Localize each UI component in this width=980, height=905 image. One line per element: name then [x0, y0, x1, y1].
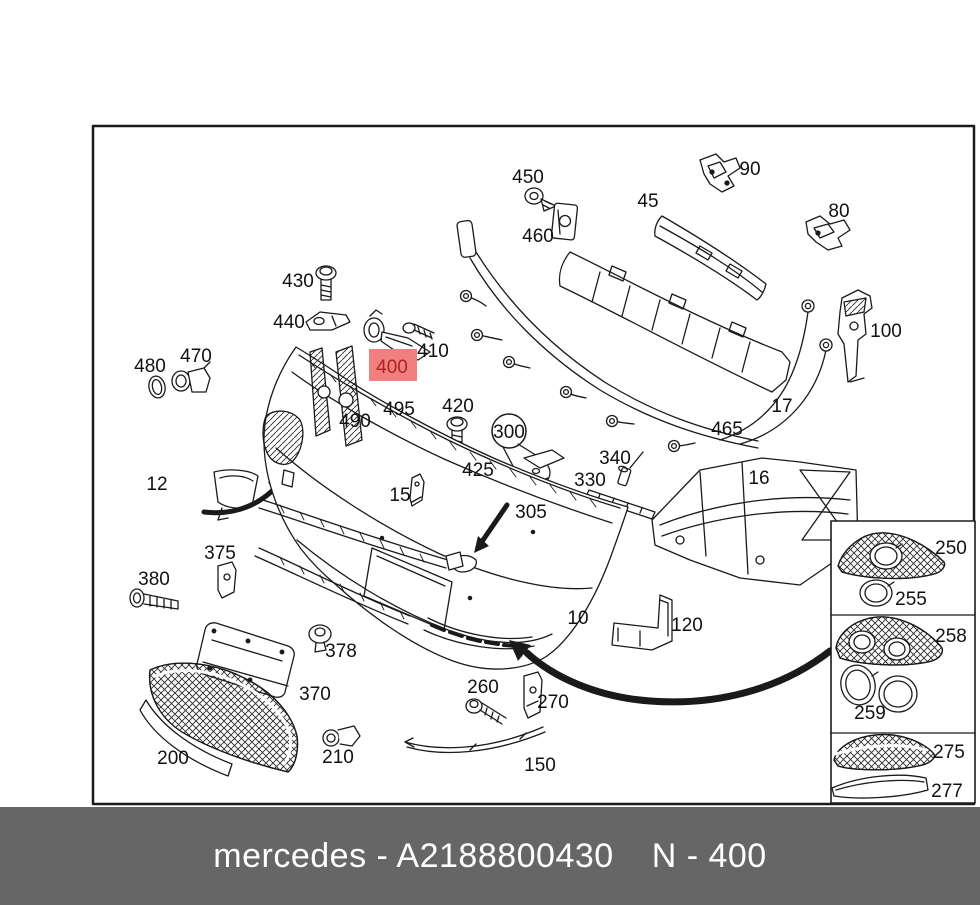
- part-label-460[interactable]: 460: [522, 226, 554, 247]
- part-label-430[interactable]: 430: [282, 271, 314, 292]
- parts-diagram-page: 450 460 90 45 80 100 430 440 410 480 470…: [0, 0, 980, 905]
- part-label-410[interactable]: 410: [417, 341, 449, 362]
- part-375-bracket: [218, 562, 236, 598]
- part-label-380[interactable]: 380: [138, 569, 170, 590]
- part-380-screw: [130, 589, 178, 609]
- footer-bar: mercedes - A2188800430 N - 400: [0, 807, 980, 905]
- part-label-490[interactable]: 490: [339, 411, 371, 432]
- part-label-275[interactable]: 275: [933, 742, 965, 763]
- part-210-sensor: [323, 726, 360, 746]
- part-label-420[interactable]: 420: [442, 396, 474, 417]
- part-label-277[interactable]: 277: [931, 781, 963, 802]
- part-label-255[interactable]: 255: [895, 589, 927, 610]
- part-17-absorber: [559, 252, 790, 392]
- part-label-270[interactable]: 270: [537, 692, 569, 713]
- part-label-10[interactable]: 10: [567, 608, 588, 629]
- diagram-canvas: 450 460 90 45 80 100 430 440 410 480 470…: [0, 0, 980, 807]
- part-label-465[interactable]: 465: [711, 419, 743, 440]
- part-label-80[interactable]: 80: [828, 201, 849, 222]
- part-460-clip: [551, 203, 578, 240]
- part-label-330[interactable]: 330: [574, 470, 606, 491]
- part-410-screw: [403, 323, 434, 339]
- part-260-screw: [466, 699, 506, 724]
- part-label-495[interactable]: 495: [383, 399, 415, 420]
- part-label-378[interactable]: 378: [325, 641, 357, 662]
- part-label-200[interactable]: 200: [157, 748, 189, 769]
- part-120-bracket: [612, 595, 672, 650]
- part-label-15[interactable]: 15: [389, 485, 410, 506]
- part-label-16[interactable]: 16: [748, 468, 769, 489]
- part-label-250[interactable]: 250: [935, 538, 967, 559]
- part-label-375[interactable]: 375: [204, 543, 236, 564]
- part-label-400[interactable]: 400: [376, 357, 408, 378]
- part-430-bolt: [316, 266, 336, 300]
- part-100-bracket: [838, 290, 872, 382]
- part-label-259[interactable]: 259: [854, 703, 886, 724]
- part-150-trim: [405, 727, 545, 752]
- part-label-45[interactable]: 45: [637, 191, 658, 212]
- part-label-90[interactable]: 90: [739, 159, 760, 180]
- part-label-370[interactable]: 370: [299, 684, 331, 705]
- part-450-rivet: [525, 188, 556, 211]
- part-label-340[interactable]: 340: [599, 448, 631, 469]
- part-label-305[interactable]: 305: [515, 502, 547, 523]
- highlighted-part-400[interactable]: 400: [369, 349, 417, 381]
- footer-part-code: mercedes - A2188800430: [213, 837, 613, 876]
- part-label-470[interactable]: 470: [180, 346, 212, 367]
- part-480-seal-ring: [147, 375, 167, 400]
- footer-note: N - 400: [652, 837, 767, 876]
- part-label-210[interactable]: 210: [322, 747, 354, 768]
- part-440-bracket: [306, 312, 350, 330]
- part-45-absorber: [655, 216, 766, 300]
- part-label-300[interactable]: 300: [493, 422, 525, 443]
- part-label-150[interactable]: 150: [524, 755, 556, 776]
- part-label-258[interactable]: 258: [935, 626, 967, 647]
- part-label-120[interactable]: 120: [671, 615, 703, 636]
- part-label-480[interactable]: 480: [134, 356, 166, 377]
- part-label-425[interactable]: 425: [462, 460, 494, 481]
- part-label-17[interactable]: 17: [771, 396, 792, 417]
- part-label-260[interactable]: 260: [467, 677, 499, 698]
- part-label-100[interactable]: 100: [870, 321, 902, 342]
- part-label-450[interactable]: 450: [512, 167, 544, 188]
- part-label-440[interactable]: 440: [273, 312, 305, 333]
- part-90-bracket: [700, 154, 740, 192]
- part-label-12[interactable]: 12: [146, 474, 167, 495]
